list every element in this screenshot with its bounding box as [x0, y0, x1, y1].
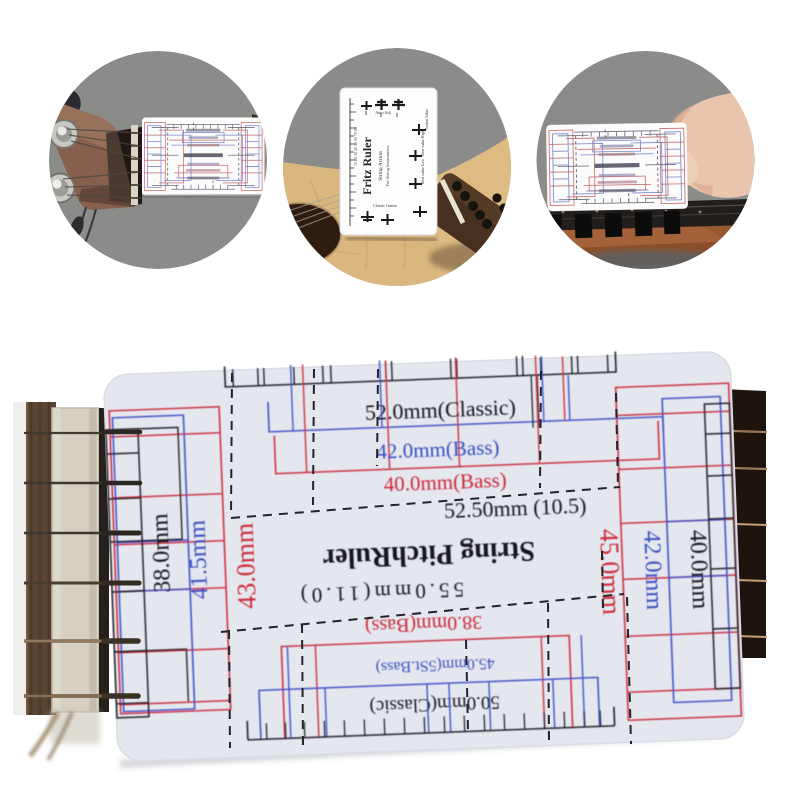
svg-text:43.0mm: 43.0mm	[230, 522, 262, 609]
svg-text:Fritz Ruler: Fritz Ruler	[360, 137, 374, 195]
svg-text:Classic Guitar: Classic Guitar	[373, 203, 397, 208]
svg-text:41.5mm: 41.5mm	[184, 519, 213, 600]
svg-text:Best value Low: Best value Low	[420, 159, 425, 184]
svg-text:40.0mm(Bass): 40.0mm(Bass)	[383, 468, 507, 497]
svg-text:Action Value: Action Value	[424, 109, 429, 130]
svg-text:45.0mm: 45.0mm	[594, 528, 626, 615]
svg-text:38.0mm: 38.0mm	[147, 513, 176, 594]
svg-text:For String Instruments: For String Instruments	[385, 145, 390, 186]
svg-text:40.0mm: 40.0mm	[684, 529, 713, 610]
svg-text:10 20 30 40 50 60 70 80: 10 20 30 40 50 60 70 80	[353, 127, 358, 166]
svg-text:Auto Adj: Auto Adj	[375, 110, 390, 115]
svg-text:38.0mm(Bass): 38.0mm(Bass)	[365, 611, 483, 637]
svg-text:42.0mm(Bass): 42.0mm(Bass)	[376, 435, 500, 464]
svg-text:String Action: String Action	[378, 151, 384, 181]
svg-text:42.0mm: 42.0mm	[638, 530, 667, 611]
svg-text:Best value High: Best value High	[420, 130, 425, 156]
